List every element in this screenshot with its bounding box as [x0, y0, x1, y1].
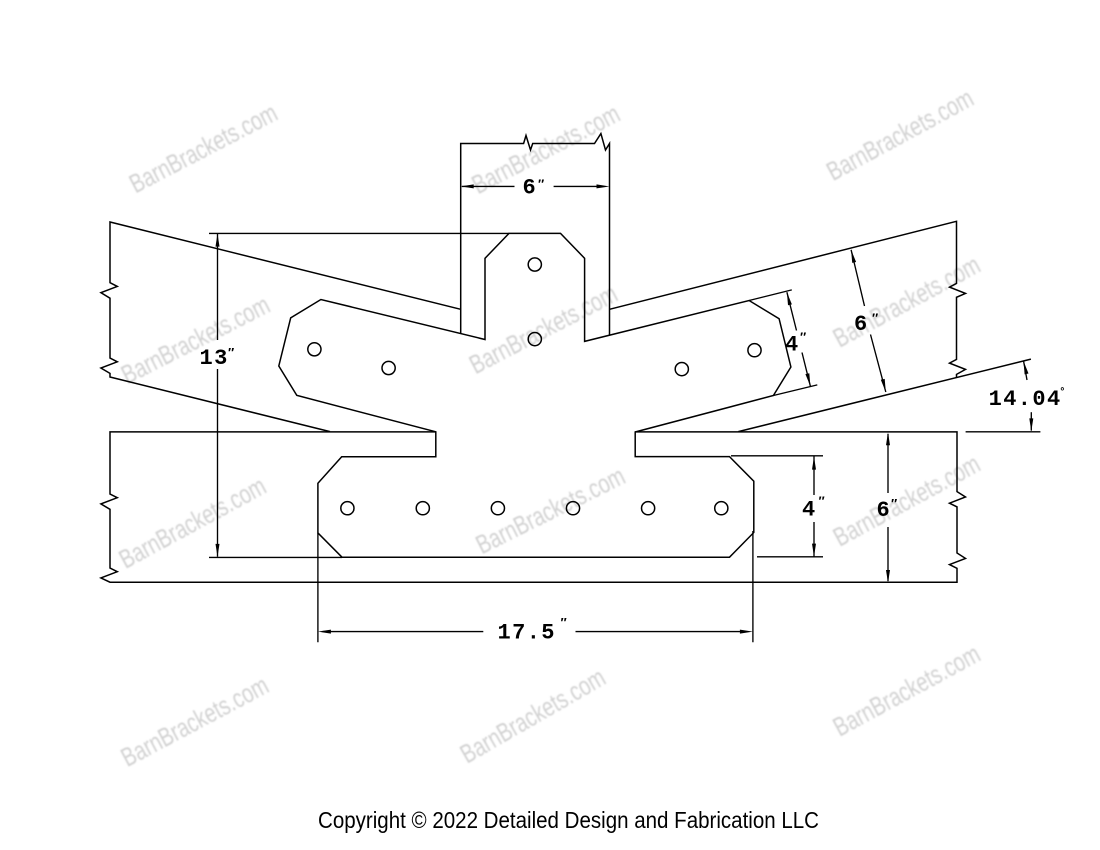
svg-text:4: 4: [802, 497, 817, 522]
svg-text:6: 6: [523, 176, 538, 201]
svg-text:4: 4: [785, 333, 800, 358]
svg-text:″: ″: [228, 345, 234, 360]
svg-text:6: 6: [854, 312, 869, 337]
svg-text:″: ″: [538, 177, 544, 192]
svg-text:″: ″: [800, 330, 806, 345]
svg-text:″: ″: [872, 311, 878, 326]
svg-text:17.5: 17.5: [498, 621, 556, 646]
svg-text:″: ″: [891, 496, 897, 511]
svg-text:″: ″: [819, 494, 825, 509]
svg-text:14.04: 14.04: [989, 387, 1062, 412]
svg-text:6: 6: [877, 498, 892, 523]
svg-text:˚: ˚: [1061, 386, 1065, 401]
svg-text:Copyright © 2022 Detailed Desi: Copyright © 2022 Detailed Design and Fab…: [318, 807, 819, 833]
svg-text:″: ″: [561, 615, 567, 630]
svg-text:13: 13: [200, 346, 229, 371]
